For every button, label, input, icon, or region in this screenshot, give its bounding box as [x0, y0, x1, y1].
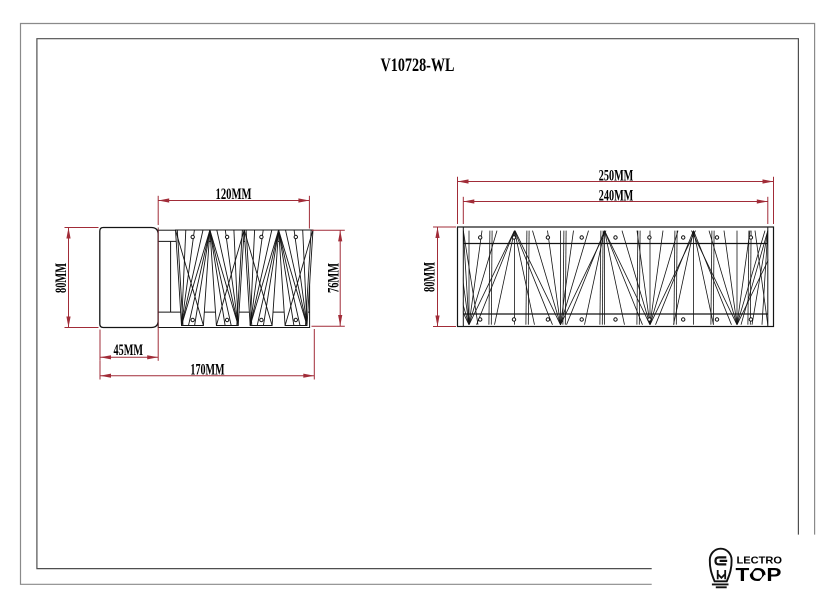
svg-text:80MM: 80MM	[53, 263, 70, 293]
svg-text:45MM: 45MM	[114, 342, 144, 359]
svg-text:80MM: 80MM	[422, 262, 439, 292]
svg-text:V10728-WL: V10728-WL	[381, 56, 455, 76]
svg-text:240MM: 240MM	[599, 188, 634, 205]
svg-text:170MM: 170MM	[190, 361, 224, 378]
svg-text:120MM: 120MM	[216, 186, 252, 203]
svg-text:250MM: 250MM	[599, 168, 634, 185]
svg-text:TOP: TOP	[736, 565, 782, 585]
svg-text:76MM: 76MM	[326, 263, 343, 293]
